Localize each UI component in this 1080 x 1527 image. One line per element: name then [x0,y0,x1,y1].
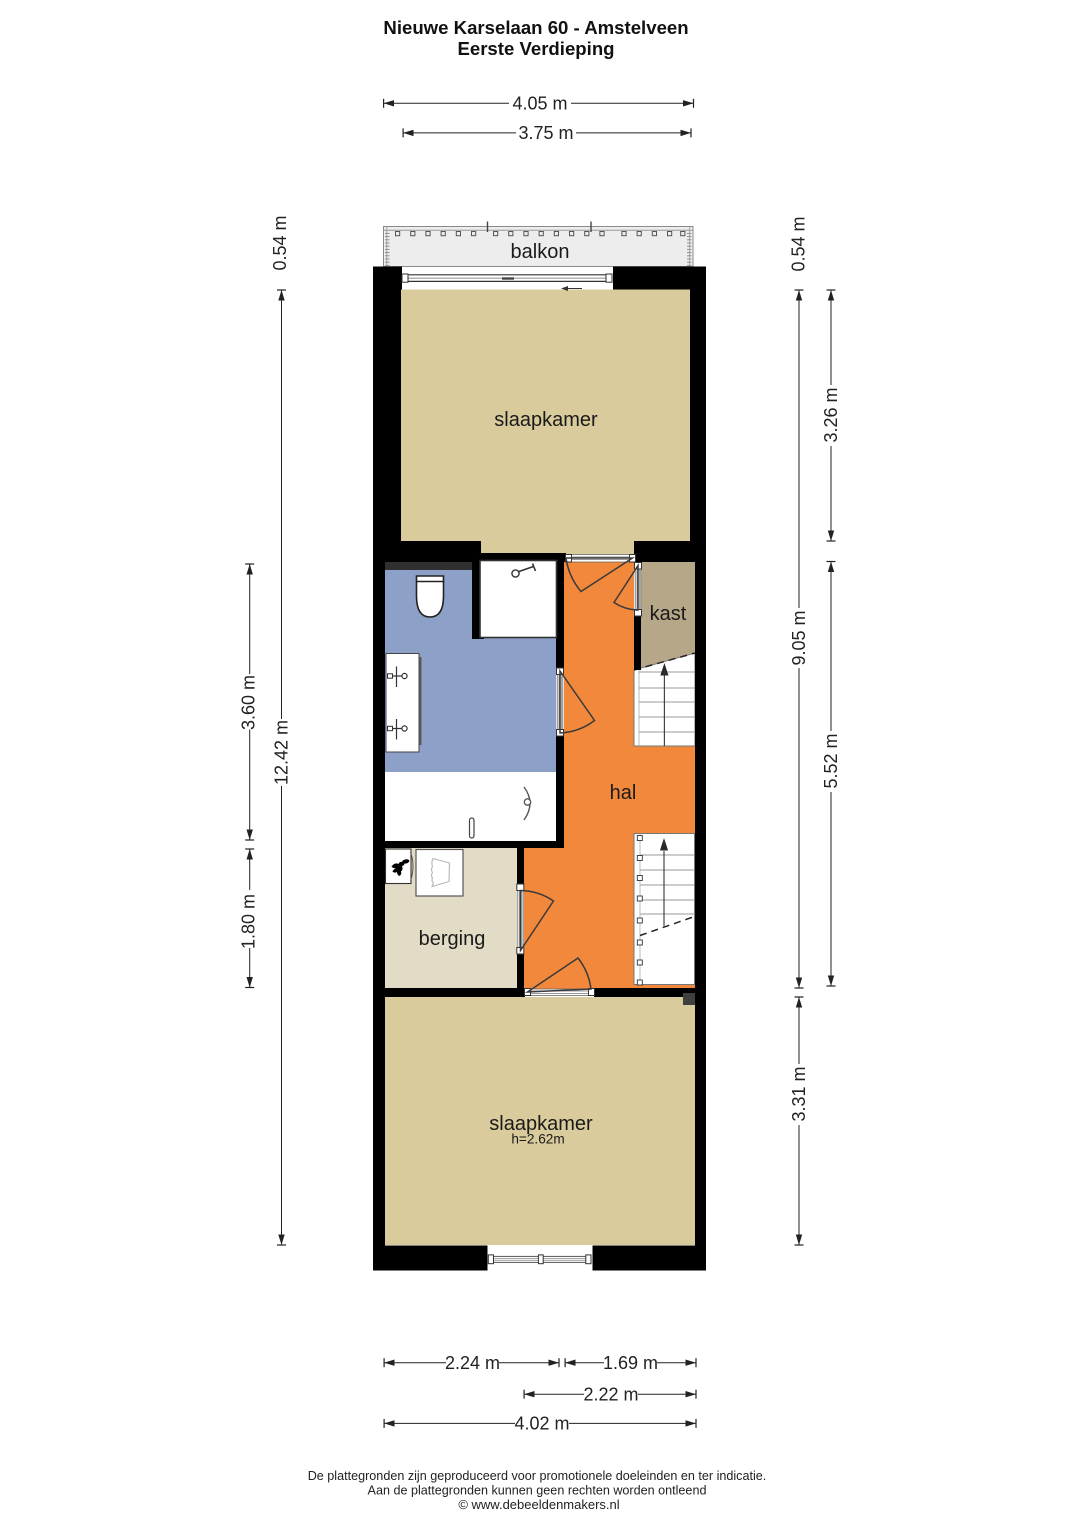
svg-text:1.69 m: 1.69 m [603,1353,658,1373]
svg-text:9.05 m: 9.05 m [789,610,809,665]
svg-text:Aan de plattegronden kunnen ge: Aan de plattegronden kunnen geen rechten… [368,1483,707,1497]
svg-text:Nieuwe Karselaan 60 - Amstelve: Nieuwe Karselaan 60 - Amstelveen [383,17,688,38]
svg-text:slaapkamer: slaapkamer [494,409,598,431]
svg-text:berging: berging [419,928,486,950]
svg-text:5.52 m: 5.52 m [821,733,841,788]
svg-text:4.05 m: 4.05 m [512,94,567,114]
svg-text:h=2.62m: h=2.62m [511,1132,564,1147]
svg-text:De plattegronden zijn geproduc: De plattegronden zijn geproduceerd voor … [308,1469,767,1483]
svg-text:3.75 m: 3.75 m [518,123,573,143]
svg-text:hal: hal [610,782,637,804]
svg-text:3.60 m: 3.60 m [239,675,259,730]
svg-text:3.31 m: 3.31 m [789,1066,809,1121]
svg-text:kast: kast [650,603,687,625]
svg-text:© www.debeeldenmakers.nl: © www.debeeldenmakers.nl [458,1497,619,1512]
svg-text:0.54 m: 0.54 m [789,216,809,271]
svg-text:4.02 m: 4.02 m [514,1414,569,1434]
svg-text:2.24 m: 2.24 m [445,1353,500,1373]
svg-text:balkon: balkon [511,241,570,263]
svg-text:Eerste Verdieping: Eerste Verdieping [457,38,614,59]
svg-text:2.22 m: 2.22 m [583,1384,638,1404]
svg-text:3.26 m: 3.26 m [821,387,841,442]
svg-text:1.80 m: 1.80 m [239,894,259,949]
svg-text:12.42 m: 12.42 m [272,720,292,785]
svg-text:0.54 m: 0.54 m [270,215,290,270]
